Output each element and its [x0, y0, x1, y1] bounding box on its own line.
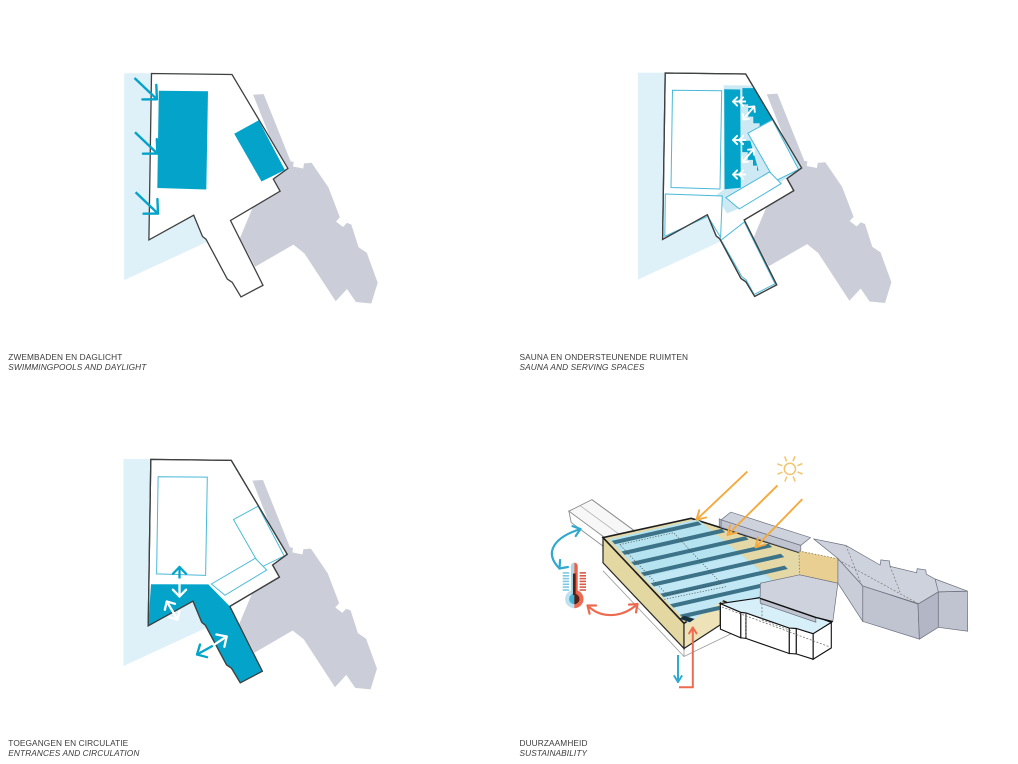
svg-text:SWIMMINGPOOLS AND DAYLIGHT: SWIMMINGPOOLS AND DAYLIGHT [8, 362, 147, 372]
svg-text:SAUNA EN ONDERSTEUNENDE RUIMTE: SAUNA EN ONDERSTEUNENDE RUIMTEN [520, 352, 689, 362]
svg-text:DUURZAAMHEID: DUURZAAMHEID [520, 738, 588, 748]
svg-text:TOEGANGEN EN CIRCULATIE: TOEGANGEN EN CIRCULATIE [8, 738, 128, 748]
svg-text:ENTRANCES AND CIRCULATION: ENTRANCES AND CIRCULATION [8, 748, 139, 758]
svg-text:ZWEMBADEN EN DAGLICHT: ZWEMBADEN EN DAGLICHT [8, 352, 122, 362]
svg-text:SAUNA AND SERVING SPACES: SAUNA AND SERVING SPACES [520, 362, 645, 372]
svg-text:SUSTAINABILITY: SUSTAINABILITY [520, 748, 589, 758]
